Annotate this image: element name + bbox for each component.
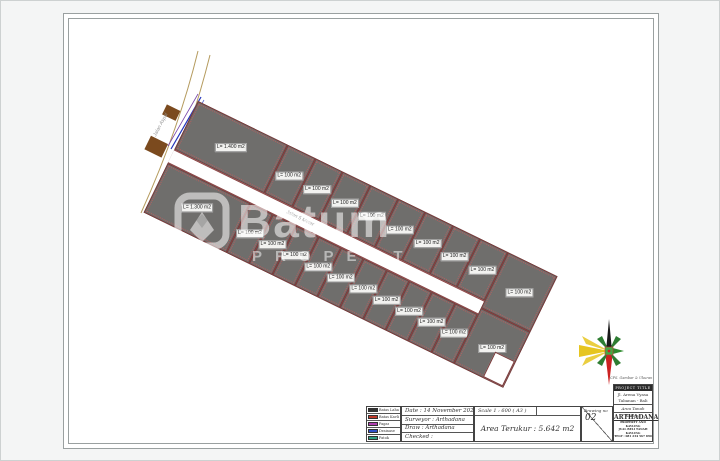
- plot-area-label: L= 100 m2: [469, 265, 497, 274]
- info-row-date: Date : 14 November 2023: [402, 407, 473, 416]
- plot-area-label: L= 1.300 m2: [181, 203, 213, 212]
- plot-area-label: L= 100 m2: [236, 229, 264, 238]
- plot-area-label: L= 100 m2: [331, 198, 359, 207]
- measured-area-value: Area Terukur : 5.642 m2: [475, 416, 580, 441]
- legend-item: Pagar: [367, 421, 400, 428]
- company-note: CPS. Gambar & Ukuran: [610, 376, 656, 380]
- info-table: Date : 14 November 2023 Surveyor : Artha…: [401, 406, 474, 442]
- scale-area-table: Scale 1 : 600 ( A3 ) Area Terukur : 5.64…: [474, 406, 581, 442]
- plot-area-label: L= 100 m2: [281, 251, 309, 260]
- plot-area-label: L= 100 m2: [441, 252, 469, 261]
- plot-area-label: L= 100 m2: [414, 238, 442, 247]
- drawing-sheet: Jalan Aspal L= 1.400 m2 L= 100 m2 L= 100…: [63, 13, 659, 449]
- project-address-line2: Tabanan - Bali: [614, 398, 652, 404]
- plot-area-label: L= 100 m2: [304, 262, 332, 271]
- plot-area-label: L= 100 m2: [441, 329, 469, 338]
- plot-area-label: L= 100 m2: [276, 171, 304, 180]
- plot-area-label: L= 100 m2: [372, 296, 400, 305]
- plot-area-label: L= 1.400 m2: [215, 143, 247, 152]
- legend-swatch: [368, 429, 378, 433]
- plot-area-label: L= 100 m2: [505, 288, 533, 297]
- legend-item: Batas Kavling: [367, 414, 400, 421]
- plot-area-label: L= 100 m2: [259, 240, 287, 249]
- legend-item: Batas Lahan: [367, 407, 400, 414]
- legend-label: Batas Kavling: [379, 415, 399, 419]
- project-address-line1: Jl. Arena Vyasa: [614, 392, 652, 398]
- drawing-number-cell: Drawing no 02: [581, 406, 613, 442]
- plot-area-label: L= 100 m2: [418, 318, 446, 327]
- legend-swatch: [368, 415, 378, 419]
- project-address: Jl. Arena Vyasa Tabanan - Bali: [614, 391, 652, 405]
- legend-swatch: [368, 436, 378, 440]
- plot-area-label: L= 100 m2: [386, 225, 414, 234]
- legend-label: Pagar: [379, 422, 389, 426]
- legend-item: Patok: [367, 435, 400, 441]
- legend-label: Batas Lahan: [379, 408, 399, 412]
- plot-area-label: L= 100 m2: [478, 343, 506, 352]
- legend-item: Drainase: [367, 428, 400, 435]
- company-panel: PROJECT TITLE Jl. Arena Vyasa Tabanan - …: [613, 384, 653, 442]
- legend-swatch: [368, 422, 378, 426]
- drawing-number-value: 02: [582, 413, 612, 423]
- info-row-draw: Draw : Arthadana: [402, 425, 473, 434]
- plot-area-label: L= 100 m2: [350, 285, 378, 294]
- plot-area-label: L= 100 m2: [327, 273, 355, 282]
- legend-label: Drainase: [379, 429, 395, 433]
- company-identity: ARTHADANA PROPERTY AND KAVLING JUAL BELI…: [614, 413, 652, 441]
- scale-value: Scale 1 : 600 ( A3 ): [475, 407, 537, 415]
- plot-area-label: L= 100 m2: [303, 185, 331, 194]
- legend-label: Patok: [379, 436, 389, 440]
- plot-area-label: L= 100 m2: [358, 212, 386, 221]
- info-row-checked: Checked :: [402, 433, 473, 441]
- legend-swatch: [368, 408, 378, 412]
- legend-table: Batas Lahan Batas Kavling Pagar Drainase…: [366, 406, 401, 442]
- plot-area-label: L= 100 m2: [395, 307, 423, 316]
- info-row-surveyor: Surveyor : Arthadana: [402, 416, 473, 425]
- project-area-type: Area Tanah Kavling: [614, 405, 652, 413]
- company-detail-line: TELP : 081 234 567 890: [614, 435, 652, 439]
